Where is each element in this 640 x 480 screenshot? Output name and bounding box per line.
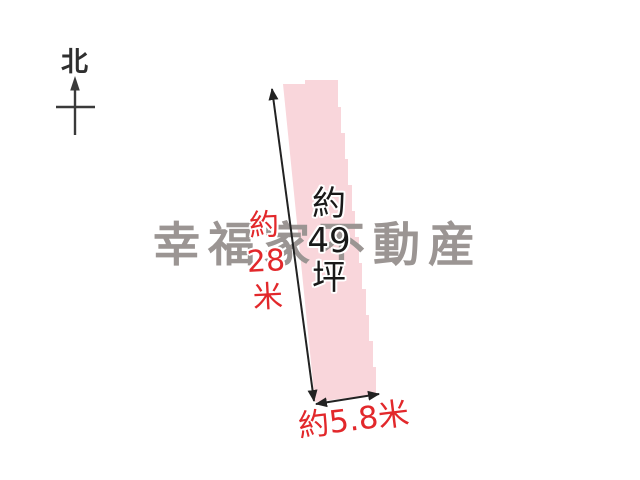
area-label: 約 49 坪 (306, 186, 352, 297)
north-arrow-icon (56, 76, 95, 135)
plot-diagram-canvas: 北 幸福家不動産 約 49 坪 約 28 米 約5.8米 (0, 0, 640, 480)
depth-dimension-line3: 米 (247, 279, 289, 317)
depth-dimension-label: 約 28 米 (243, 207, 289, 317)
depth-dimension-line1: 約 (243, 207, 285, 245)
area-label-line3: 坪 (306, 260, 352, 297)
area-label-line1: 約 (306, 186, 352, 223)
depth-dimension-line2: 28 (245, 243, 287, 281)
area-label-line2: 49 (306, 223, 352, 260)
